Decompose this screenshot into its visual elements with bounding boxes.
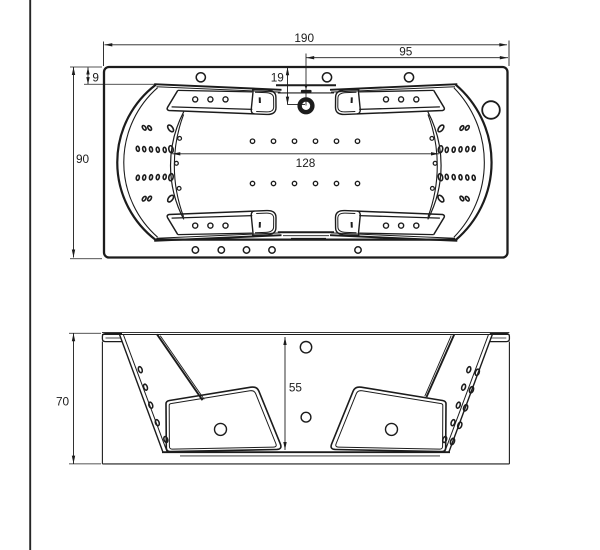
svg-text:90: 90 bbox=[76, 152, 90, 166]
svg-text:128: 128 bbox=[296, 156, 316, 170]
svg-text:19: 19 bbox=[271, 71, 284, 85]
svg-text:190: 190 bbox=[294, 31, 314, 45]
svg-text:55: 55 bbox=[289, 380, 303, 394]
svg-text:95: 95 bbox=[399, 45, 413, 59]
svg-text:70: 70 bbox=[56, 394, 70, 408]
svg-text:9: 9 bbox=[92, 70, 99, 84]
